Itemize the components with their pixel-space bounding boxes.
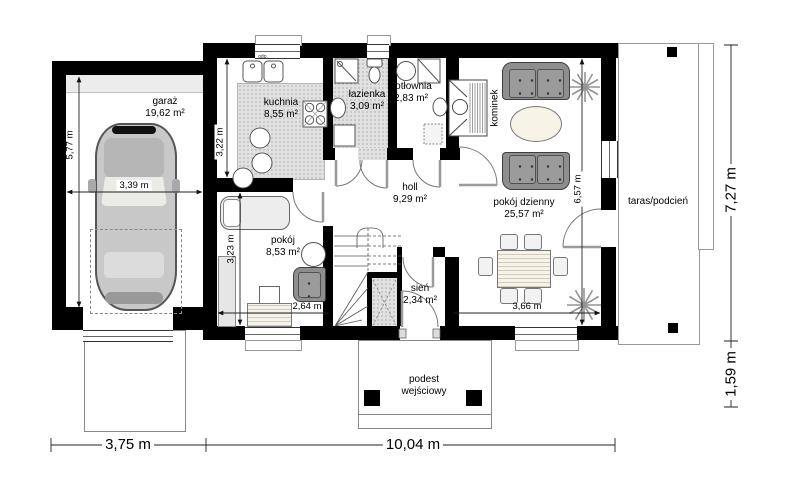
- dim-garage-depth: 5,77 m: [65, 130, 76, 159]
- room-label-vestibule: sień 2,34 m²: [403, 283, 437, 306]
- sofa-top: [502, 62, 570, 100]
- closet-frame-right: [397, 247, 402, 326]
- wall-living-left-lower: [445, 257, 459, 326]
- room-window: [245, 327, 300, 341]
- wall-house-bottom-2: [300, 326, 400, 340]
- closet-floor: [372, 278, 397, 326]
- dining-chair: [524, 234, 542, 250]
- kitchen-sink-icon: [243, 61, 283, 82]
- room-name: pokój dzienny: [493, 197, 554, 208]
- terrace-sliding-window: [601, 141, 618, 178]
- plant-icon: [570, 72, 600, 102]
- wall-boiler-right: [446, 58, 459, 148]
- entrance-step: [358, 414, 492, 429]
- dining-chair: [500, 234, 518, 250]
- dining-table: [497, 250, 551, 288]
- wall-hall-top-3: [440, 148, 460, 160]
- car-mirror-right: [172, 179, 180, 193]
- water-heater-icon: [418, 59, 440, 83]
- room-label-kitchen: kuchnia 8,55 m²: [264, 97, 298, 120]
- terrace-area: [618, 43, 700, 345]
- living-room-window: [515, 327, 577, 341]
- terrace-column-top: [667, 47, 677, 57]
- dim-garage-width: 3,39 m: [116, 180, 151, 191]
- garage-reserved-space: [90, 229, 182, 314]
- bathroom-door-floor: [358, 148, 387, 160]
- wall-kitchen-right: [323, 58, 333, 160]
- room-label-fireplace: kominek: [490, 89, 501, 126]
- terrace-column-bottom: [668, 323, 678, 333]
- wall-kitchen-room-divider: [203, 178, 293, 192]
- wall-bathroom-right: [388, 58, 397, 160]
- dining-chair: [478, 257, 493, 276]
- wall-house-bottom-1: [203, 326, 245, 340]
- wall-house-right-1: [601, 43, 616, 141]
- floor-plan: garaż 19,62 m² kuchnia 8,55 m² łazienka …: [0, 0, 800, 501]
- armchair: [293, 267, 326, 302]
- wall-vestibule-stub: [433, 247, 445, 257]
- dining-chair: [553, 257, 568, 276]
- entrance-column-left: [364, 390, 380, 406]
- room-label-hall: holl 9,29 m²: [393, 182, 427, 205]
- side-table-round: [301, 242, 326, 267]
- bathroom-window: [367, 44, 389, 59]
- room-area: 19,62 m²: [145, 108, 184, 119]
- coffee-table: [510, 106, 562, 142]
- terrace-edge-strip: [698, 43, 714, 250]
- car-front-strip: [112, 126, 156, 134]
- wall-garage-top: [52, 61, 203, 75]
- dim-garage-bay-width: 3,75 m: [102, 436, 154, 453]
- dim-room-width: 2,64 m: [292, 301, 321, 312]
- living-window-sill: [515, 340, 579, 351]
- dim-living-depth: 6,57 m: [573, 171, 584, 206]
- room-name: kotłownia: [390, 81, 432, 92]
- boiler-sink-icon: [433, 98, 447, 116]
- car-mirror-left: [88, 179, 96, 193]
- garage-top-strip: [66, 75, 203, 93]
- room-name: taras/podcień: [628, 196, 688, 207]
- wall-hall-top-2: [387, 148, 413, 160]
- room-label-bathroom: łazienka 3,09 m²: [349, 89, 386, 112]
- dim-kitchen-depth: 3,22 m: [215, 124, 226, 159]
- entrance-column-right: [466, 390, 482, 406]
- boiler-icon: [397, 62, 416, 81]
- room-name: garaż: [152, 96, 177, 107]
- car-roof: [104, 138, 164, 178]
- dim-terrace-depth: 1,59 m: [723, 348, 740, 400]
- driveway: [84, 330, 186, 432]
- room-area: 2,34 m²: [403, 295, 437, 306]
- desk: [247, 303, 292, 327]
- room-name: sień: [411, 283, 429, 294]
- room-area: 25,57 m²: [504, 209, 543, 220]
- room-label-boiler-room: kotłownia 2,83 m²: [390, 81, 432, 104]
- room-area: 8,53 m²: [266, 247, 300, 258]
- dim-house-depth: 7,27 m: [723, 164, 740, 216]
- dim-house-width: 10,04 m: [383, 436, 443, 453]
- room-name: wejściowy: [401, 386, 446, 397]
- wardrobe: [218, 256, 236, 327]
- room-label-terrace: taras/podcień: [628, 196, 688, 208]
- room-name: podest: [409, 374, 439, 385]
- wall-garage-left: [52, 61, 66, 330]
- room-label-garage: garaż 19,62 m²: [145, 96, 184, 119]
- room-area: 9,29 m²: [393, 194, 427, 205]
- room-area: 3,09 m²: [350, 101, 384, 112]
- wall-hall-top-1: [323, 148, 335, 160]
- sofa-bottom: [502, 152, 570, 190]
- dim-living-width: 3,66 m: [512, 301, 541, 312]
- room-label-living-room: pokój dzienny 25,57 m²: [493, 197, 554, 220]
- garage-door-panel: [83, 330, 173, 342]
- pillow: [223, 199, 241, 227]
- plant-icon: [567, 288, 601, 322]
- sink-drain-note: odp.: [258, 54, 268, 60]
- room-area: 2,83 m²: [394, 93, 428, 104]
- dim-room-depth: 3,23 m: [226, 234, 237, 263]
- room-window-sill: [245, 340, 302, 351]
- entrance-door-jambs: [399, 329, 440, 338]
- room-label-entrance-platform: podest wejściowy: [401, 374, 446, 397]
- room-name: holl: [402, 182, 418, 193]
- wall-house-bottom-4: [577, 326, 618, 340]
- wall-house-bottom-3: [440, 326, 515, 340]
- floor-drain: [424, 124, 442, 144]
- room-label-room: pokój 8,53 m²: [266, 235, 300, 258]
- wall-garage-bottom-1: [52, 307, 83, 330]
- room-name: łazienka: [349, 89, 386, 100]
- room-name: kuchnia: [264, 97, 298, 108]
- wall-house-right-2: [601, 178, 616, 210]
- room-name: pokój: [271, 235, 295, 246]
- room-area: 8,55 m²: [264, 109, 298, 120]
- closet-frame-left: [367, 278, 372, 326]
